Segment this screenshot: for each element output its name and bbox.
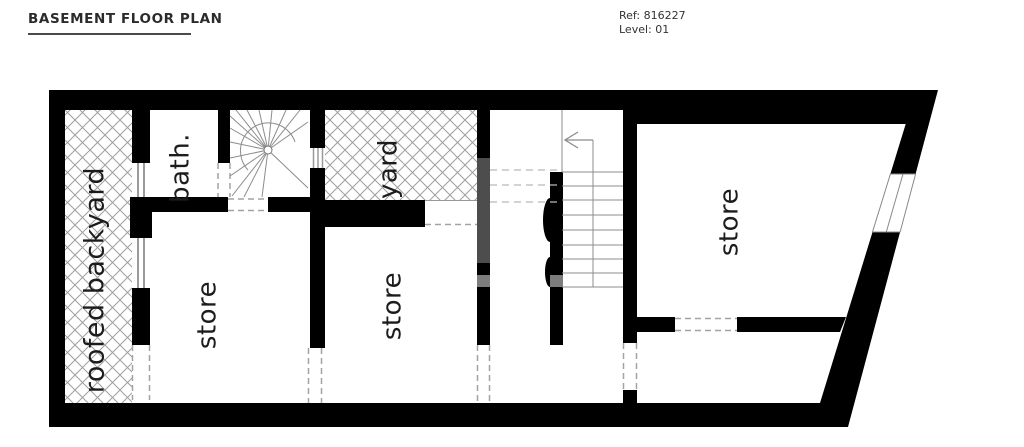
room-label-store-middle: store xyxy=(378,272,408,340)
room-label-store-right: store xyxy=(715,188,745,256)
room-label-bath: bath. xyxy=(166,133,196,203)
stair-direction-arrow xyxy=(565,132,593,148)
room-label-yard: yard xyxy=(374,139,404,199)
ref-block: Ref: 816227 Level: 01 xyxy=(619,9,686,36)
page: BASEMENT FLOOR PLAN Ref: 816227 Level: 0… xyxy=(0,0,1024,443)
floor-plan-svg: roofed backyard bath. yard store store s… xyxy=(0,0,1024,443)
page-title: BASEMENT FLOOR PLAN xyxy=(28,11,223,27)
window-backyard-store xyxy=(138,238,144,288)
title-block: BASEMENT FLOOR PLAN xyxy=(28,11,223,35)
window-backyard-bath xyxy=(138,163,144,197)
ref-label: Ref: 816227 xyxy=(619,9,686,23)
spiral-staircase xyxy=(230,110,308,197)
room-label-store-left: store xyxy=(193,281,223,349)
window-slanted-wall xyxy=(873,174,916,232)
window-yard-wall xyxy=(310,148,325,168)
room-label-roofed-backyard: roofed backyard xyxy=(80,167,111,393)
title-underline xyxy=(28,33,191,35)
level-label: Level: 01 xyxy=(619,23,686,37)
